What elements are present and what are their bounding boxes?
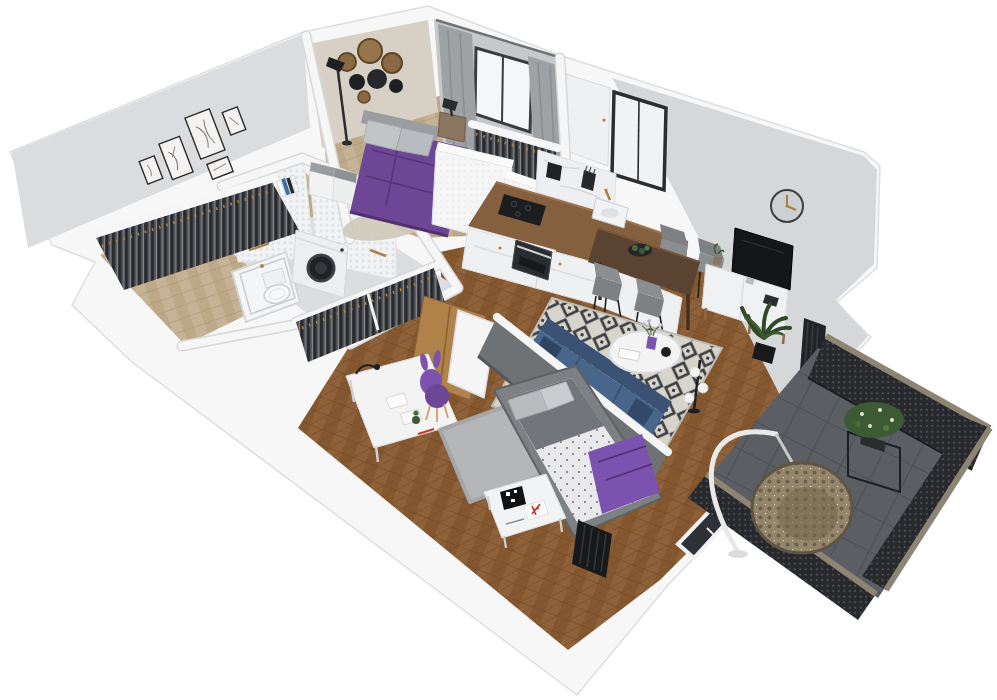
wall-clock (771, 190, 803, 222)
apartment-3d-floorplan (0, 0, 997, 700)
succulent-plate (628, 244, 652, 257)
floorplan-canvas (0, 0, 997, 700)
shrub (844, 402, 904, 438)
vase (646, 336, 657, 350)
bowl (661, 347, 671, 357)
cactus-figure (412, 416, 420, 424)
